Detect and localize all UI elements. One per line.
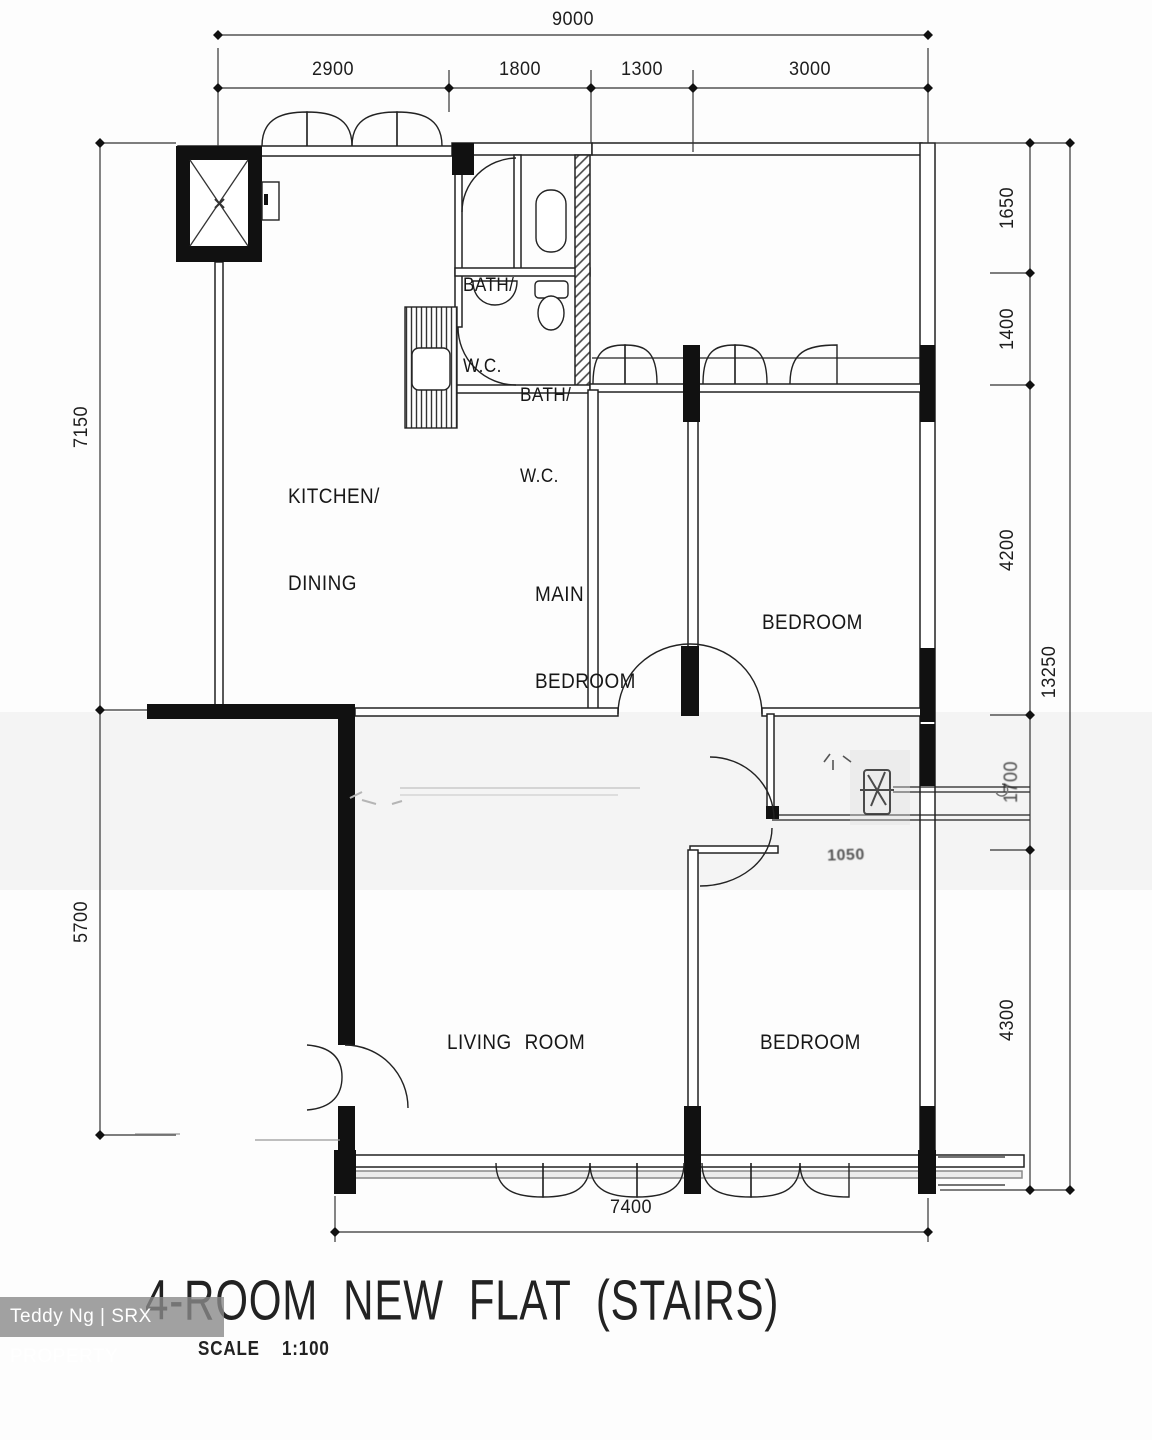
- lift-shaft: [176, 146, 279, 262]
- dim-right-seg-3: 4200: [997, 529, 1019, 571]
- plan-scale: SCALE1:100: [198, 1338, 330, 1361]
- dim-right-seg-2: 1400: [997, 308, 1019, 350]
- room-label-bath-wc-lower: BATH/ W.C.: [520, 328, 571, 517]
- room-label-bedroom-top: BEDROOM: [762, 550, 863, 666]
- plan-title: 4-ROOM NEW FLAT (STAIRS): [145, 1268, 779, 1333]
- dim-top-total: 9000: [552, 9, 594, 31]
- dim-right-seg-1: 1650: [997, 187, 1019, 229]
- dim-bottom: 7400: [610, 1197, 652, 1219]
- room-label-bedroom-bottom: BEDROOM: [760, 970, 861, 1086]
- dim-right-seg-5: 4300: [997, 999, 1019, 1041]
- room-label-bath-wc-upper: BATH/ W.C.: [463, 218, 514, 407]
- room-label-living-room: LIVING ROOM: [447, 970, 585, 1086]
- dim-top-seg-1: 2900: [312, 59, 354, 81]
- room-label-main-bedroom: MAIN BEDROOM: [535, 522, 636, 725]
- dim-left-upper: 7150: [71, 406, 93, 448]
- dim-top-seg-3: 1300: [621, 59, 663, 81]
- scan-band-artifact: [0, 712, 1152, 890]
- watermark-badge: Teddy Ng | SRX PROPERTY: [0, 1297, 224, 1337]
- dim-right-total: 13250: [1039, 646, 1061, 699]
- dim-right-seg-4: 1700: [1001, 761, 1023, 803]
- room-label-kitchen-dining: KITCHEN/ DINING: [288, 424, 380, 627]
- scale-label: SCALE: [198, 1338, 260, 1360]
- dim-left-lower: 5700: [71, 901, 93, 943]
- dim-corridor-faint: 1050: [827, 846, 865, 865]
- dim-top-seg-4: 3000: [789, 59, 831, 81]
- dim-top-seg-2: 1800: [499, 59, 541, 81]
- floorplan-page: KITCHEN/ DINING BATH/ W.C. BATH/ W.C. MA…: [0, 0, 1152, 1440]
- scale-value: 1:100: [282, 1338, 330, 1360]
